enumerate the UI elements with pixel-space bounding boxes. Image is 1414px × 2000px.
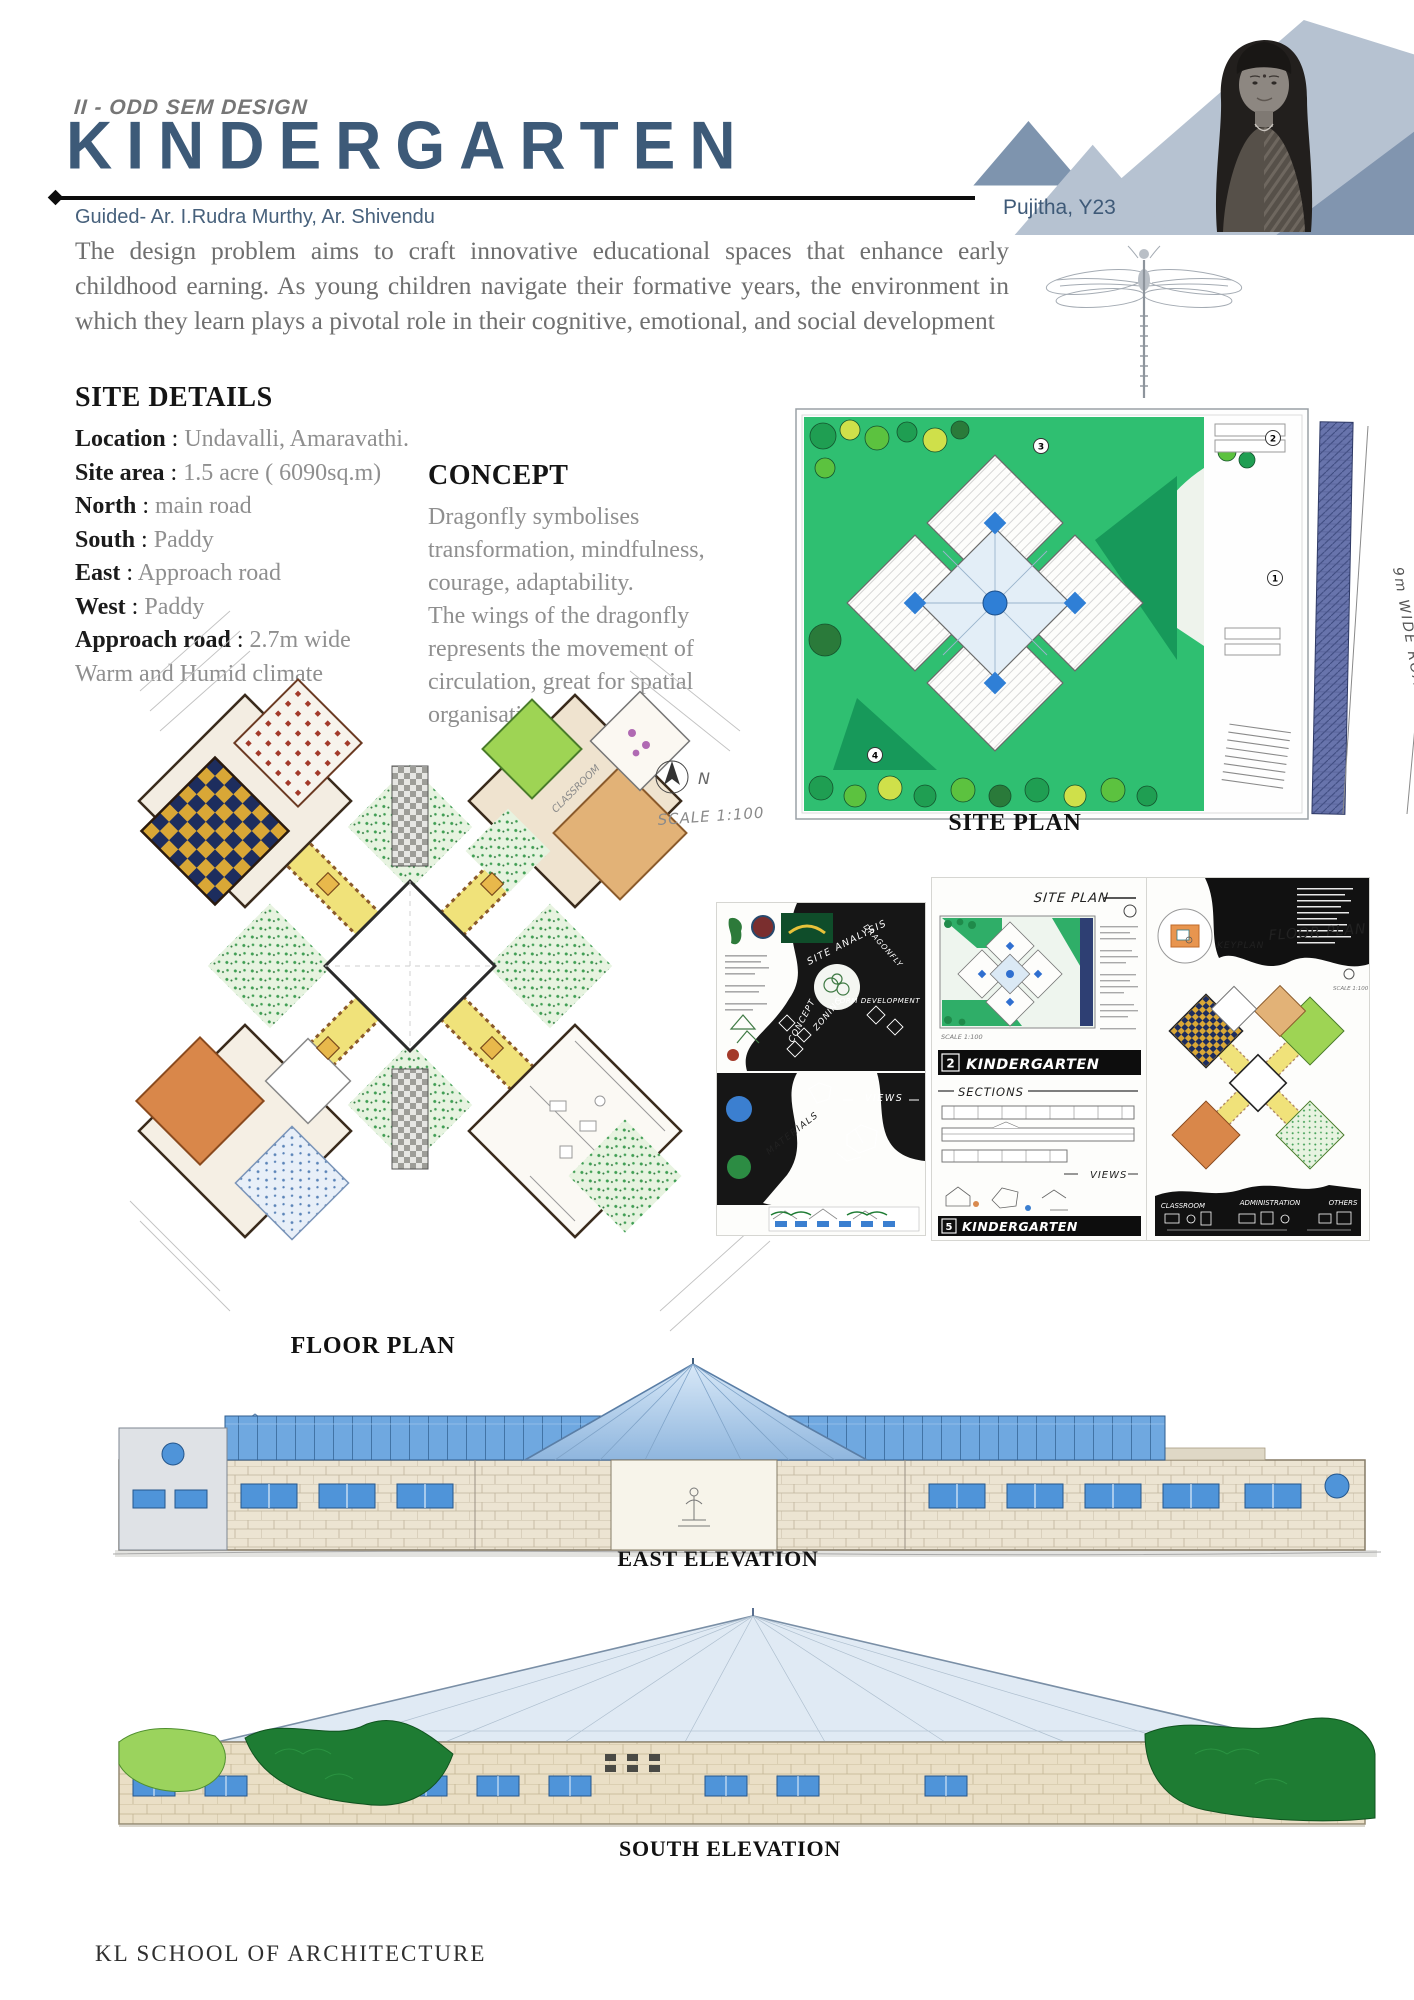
intro-paragraph: The design problem aims to craft innovat… [75, 233, 1009, 338]
svg-text:1: 1 [1272, 575, 1278, 585]
board3-scale: SCALE 1:100 [1333, 986, 1369, 992]
school-footer: KL SCHOOL OF ARCHITECTURE [95, 1941, 486, 1967]
board1-form-development: FORM DEVELOPMENT [835, 996, 920, 1005]
guided-by-text: Guided- Ar. I.Rudra Murthy, Ar. Shivendu [75, 206, 435, 229]
board2-sections: SECTIONS [958, 1085, 1024, 1099]
page-title: KINDERGARTEN [66, 106, 750, 184]
south-elevation-figure [105, 1604, 1390, 1849]
site-detail-row: SouthPaddy [75, 524, 435, 558]
wing-northeast: CLASSROOM [466, 692, 690, 908]
site-plan-figure: 1 2 3 4 9m WIDE ROAD [795, 408, 1414, 823]
east-elevation-figure [105, 1358, 1390, 1563]
board1-views: VIEWS [865, 1093, 903, 1104]
board2-scale: SCALE 1:100 [941, 1033, 983, 1041]
svg-text:3: 3 [1038, 443, 1044, 453]
south-elevation-caption: SOUTH ELEVATION [480, 1836, 980, 1862]
mini-site-plan [940, 916, 1095, 1028]
board2-view-sketches [946, 1187, 1068, 1211]
presentation-board-siteplan-sections: SITE PLAN SCALE 1:100 [932, 878, 1147, 1240]
board2-logo-bottom: KINDERGARTEN [962, 1219, 1078, 1234]
east-elevation-caption: EAST ELEVATION [468, 1546, 968, 1572]
presentation-board-analysis: SITE ANALYSIS CONCEPT ZONING DRAGONFLY F… [717, 903, 925, 1235]
compass-label: N [698, 769, 710, 788]
board3-legend-others: OTHERS [1329, 1199, 1358, 1207]
diamond-icon [48, 190, 64, 206]
author-name: Pujitha, Y23 [1003, 196, 1116, 220]
south-elevation-drawing [105, 1604, 1390, 1849]
portfolio-sheet: II - ODD SEM DESIGN KINDERGARTEN Guided-… [0, 0, 1414, 2000]
entry-hall-north [392, 766, 428, 866]
elevation-strip-sketch [769, 1207, 919, 1231]
section-sketches [942, 1106, 1134, 1162]
student-portrait-photo [1185, 32, 1343, 232]
compass-icon [656, 761, 688, 793]
area-statement-scribbles [1100, 926, 1138, 1029]
india-map-icon [729, 918, 742, 944]
board2-title-band: 2 KINDERGARTEN [938, 1050, 1141, 1075]
notes-scribbles [725, 955, 769, 1011]
entry-hall-south [392, 1069, 428, 1169]
board3-legend-administration: ADMINISTRATION [1239, 1199, 1301, 1207]
site-detail-row: Northmain road [75, 490, 435, 524]
board2-title: SITE PLAN [1033, 891, 1110, 906]
dragonfly-sketch-icon [1040, 238, 1245, 406]
site-plan-drawing: 1 2 3 4 9m WIDE ROAD [795, 408, 1414, 823]
board3-legend-band: CLASSROOM ADMINISTRATION OTHERS [1155, 1185, 1361, 1236]
central-pyramid [525, 1358, 867, 1460]
board2-sheet-number: 2 [946, 1057, 954, 1071]
flag-sketch [781, 913, 833, 943]
road-label: 9m WIDE ROAD [1389, 566, 1414, 701]
floor-plan-caption: FLOOR PLAN [123, 1333, 623, 1360]
site-detail-row: Site area1.5 acre ( 6090sq.m) [75, 457, 435, 491]
floor-plan-figure: CLASSROOM [80, 581, 820, 1346]
board3-legend-classroom: CLASSROOM [1161, 1202, 1205, 1210]
board2-sheet-number-bottom: 5 [946, 1222, 953, 1233]
floor-plan-drawing: CLASSROOM [80, 581, 820, 1346]
east-elevation-drawing [105, 1358, 1390, 1563]
board2-logo: KINDERGARTEN [966, 1057, 1099, 1073]
site-plan-caption: SITE PLAN [755, 810, 1275, 837]
title-rule [57, 196, 975, 200]
green-court [208, 904, 332, 1028]
site-detail-row: LocationUndavalli, Amaravathi. [75, 423, 435, 457]
svg-text:2: 2 [1270, 435, 1276, 445]
wing-southwest [136, 1025, 351, 1240]
board2-bottom-band: 5 KINDERGARTEN [938, 1216, 1141, 1236]
mini-floor-plan [1169, 986, 1344, 1169]
board3-keyplan: KEYPLAN [1217, 941, 1264, 951]
site-details-heading: SITE DETAILS [75, 382, 435, 414]
keyplan-sketch [1171, 925, 1199, 947]
concept-heading: CONCEPT [428, 460, 764, 492]
green-court [488, 904, 612, 1028]
board2-views: VIEWS [1090, 1170, 1127, 1181]
presentation-board-floorplan: KEYPLAN FLOOR PLAN SCALE 1:100 CLASSROOM… [1147, 878, 1369, 1240]
svg-text:4: 4 [872, 752, 878, 762]
